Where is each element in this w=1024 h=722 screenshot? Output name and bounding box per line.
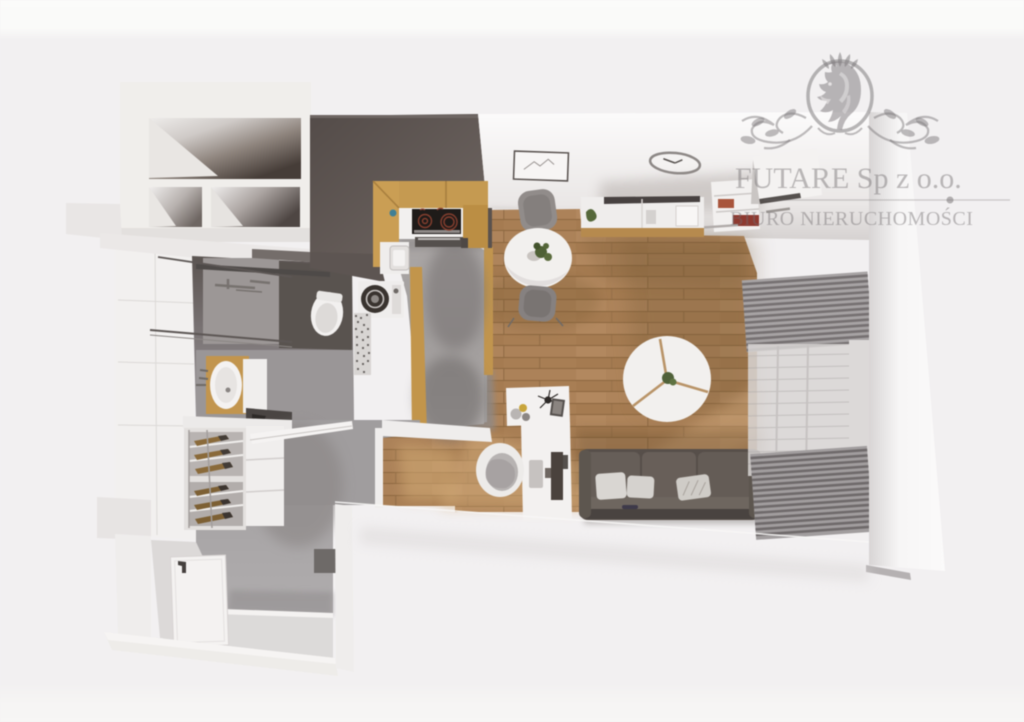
- svg-text:FUTARE Sp z o.o.: FUTARE Sp z o.o.: [735, 162, 962, 195]
- svg-text:BIURO NIERUCHOMOŚCI: BIURO NIERUCHOMOŚCI: [730, 206, 973, 230]
